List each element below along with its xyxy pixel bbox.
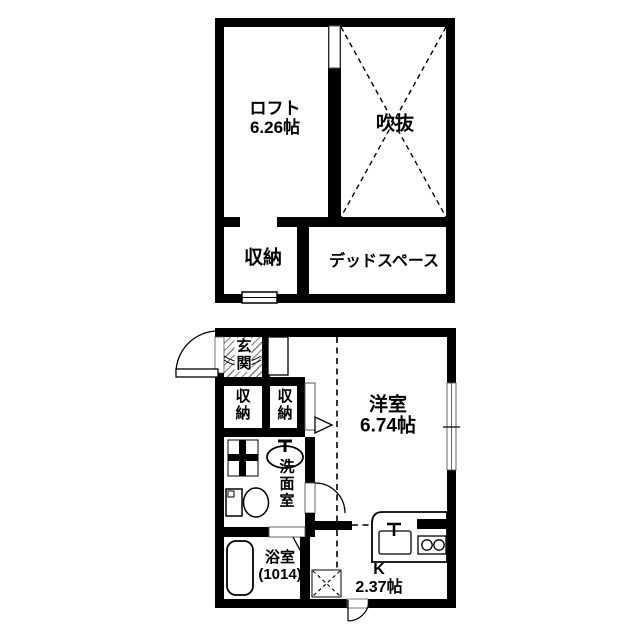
room-label-washroom: 洗面室	[279, 459, 294, 510]
room-label-entrance: 玄関	[235, 338, 252, 372]
entrance-door-arc	[176, 331, 218, 373]
room-label-upper-storage: 収納	[244, 247, 282, 268]
room-label-loft: ロフト 6.26帖	[250, 99, 301, 137]
stove-burners	[434, 540, 444, 550]
kitchen-right-wall-segment	[417, 519, 447, 529]
kitchen-wall-segment	[315, 521, 352, 530]
storage-mid-bottom-wall	[262, 428, 305, 437]
bathtub	[227, 541, 253, 595]
washroom-wall-lower	[305, 513, 315, 537]
void-name: 吹抜	[376, 113, 414, 134]
lower-plan	[176, 331, 460, 621]
loft-size: 6.26帖	[250, 118, 301, 137]
room-label-storage-mid: 収納	[277, 388, 292, 422]
stove-burners	[422, 540, 432, 550]
room-label-western-room: 洋室 6.74帖	[360, 395, 416, 438]
room-label-kitchen: K 2.37帖	[355, 561, 402, 597]
entrance-door-leaf	[176, 369, 218, 377]
bathroom-name: 浴室	[258, 550, 301, 567]
shaft-x-box	[312, 570, 341, 597]
floor-plan-drawing	[0, 0, 640, 640]
toilet-bowl	[244, 488, 269, 517]
floor-plan: ロフト 6.26帖 吹抜 収納 デッドスペース 玄関 収納 収納 洋室 6.74…	[0, 0, 640, 640]
bathroom-door-opening	[269, 527, 305, 537]
room-label-void: 吹抜	[376, 113, 414, 134]
entrance-opening	[215, 337, 224, 373]
washroom-door-opening	[305, 483, 315, 513]
upper-storage-name: 収納	[244, 247, 282, 268]
storage-mid-name: 収納	[276, 388, 293, 422]
cross-pane-window	[228, 454, 258, 461]
loft-bottom-wall-right	[277, 217, 446, 227]
loft-name: ロフト	[250, 99, 301, 118]
storage-deadspace-wall	[297, 227, 309, 294]
back-door-opening	[347, 599, 368, 608]
deadspace-name: デッドスペース	[329, 253, 439, 271]
kitchen-size: 2.37帖	[355, 579, 402, 597]
entrance-bottom-wall	[215, 377, 270, 386]
toilet-handle	[228, 491, 234, 497]
room-label-deadspace: デッドスペース	[329, 253, 439, 271]
bathroom-top-wall	[215, 527, 269, 537]
room-label-storage-left: 収納	[235, 388, 250, 422]
closet-sliding-door	[305, 383, 315, 430]
divider-opening	[329, 26, 340, 68]
kitchen-name: K	[355, 561, 402, 579]
storage-left-bottom-wall	[215, 428, 270, 437]
shoe-cabinet	[268, 337, 288, 375]
washroom-door-arc	[315, 483, 345, 513]
room-label-bathroom: 浴室 (1014)	[258, 550, 301, 584]
entrance-name: 玄関	[235, 338, 252, 372]
storage-left-name: 収納	[234, 388, 251, 422]
washroom-wall-upper	[305, 437, 315, 483]
washroom-name: 洗面室	[278, 459, 295, 510]
bathroom-size: (1014)	[258, 567, 301, 584]
western-room-size: 6.74帖	[360, 416, 416, 437]
loft-bottom-wall-left	[224, 217, 240, 227]
western-room-name: 洋室	[360, 395, 416, 416]
closet-door-triangle	[315, 417, 332, 433]
